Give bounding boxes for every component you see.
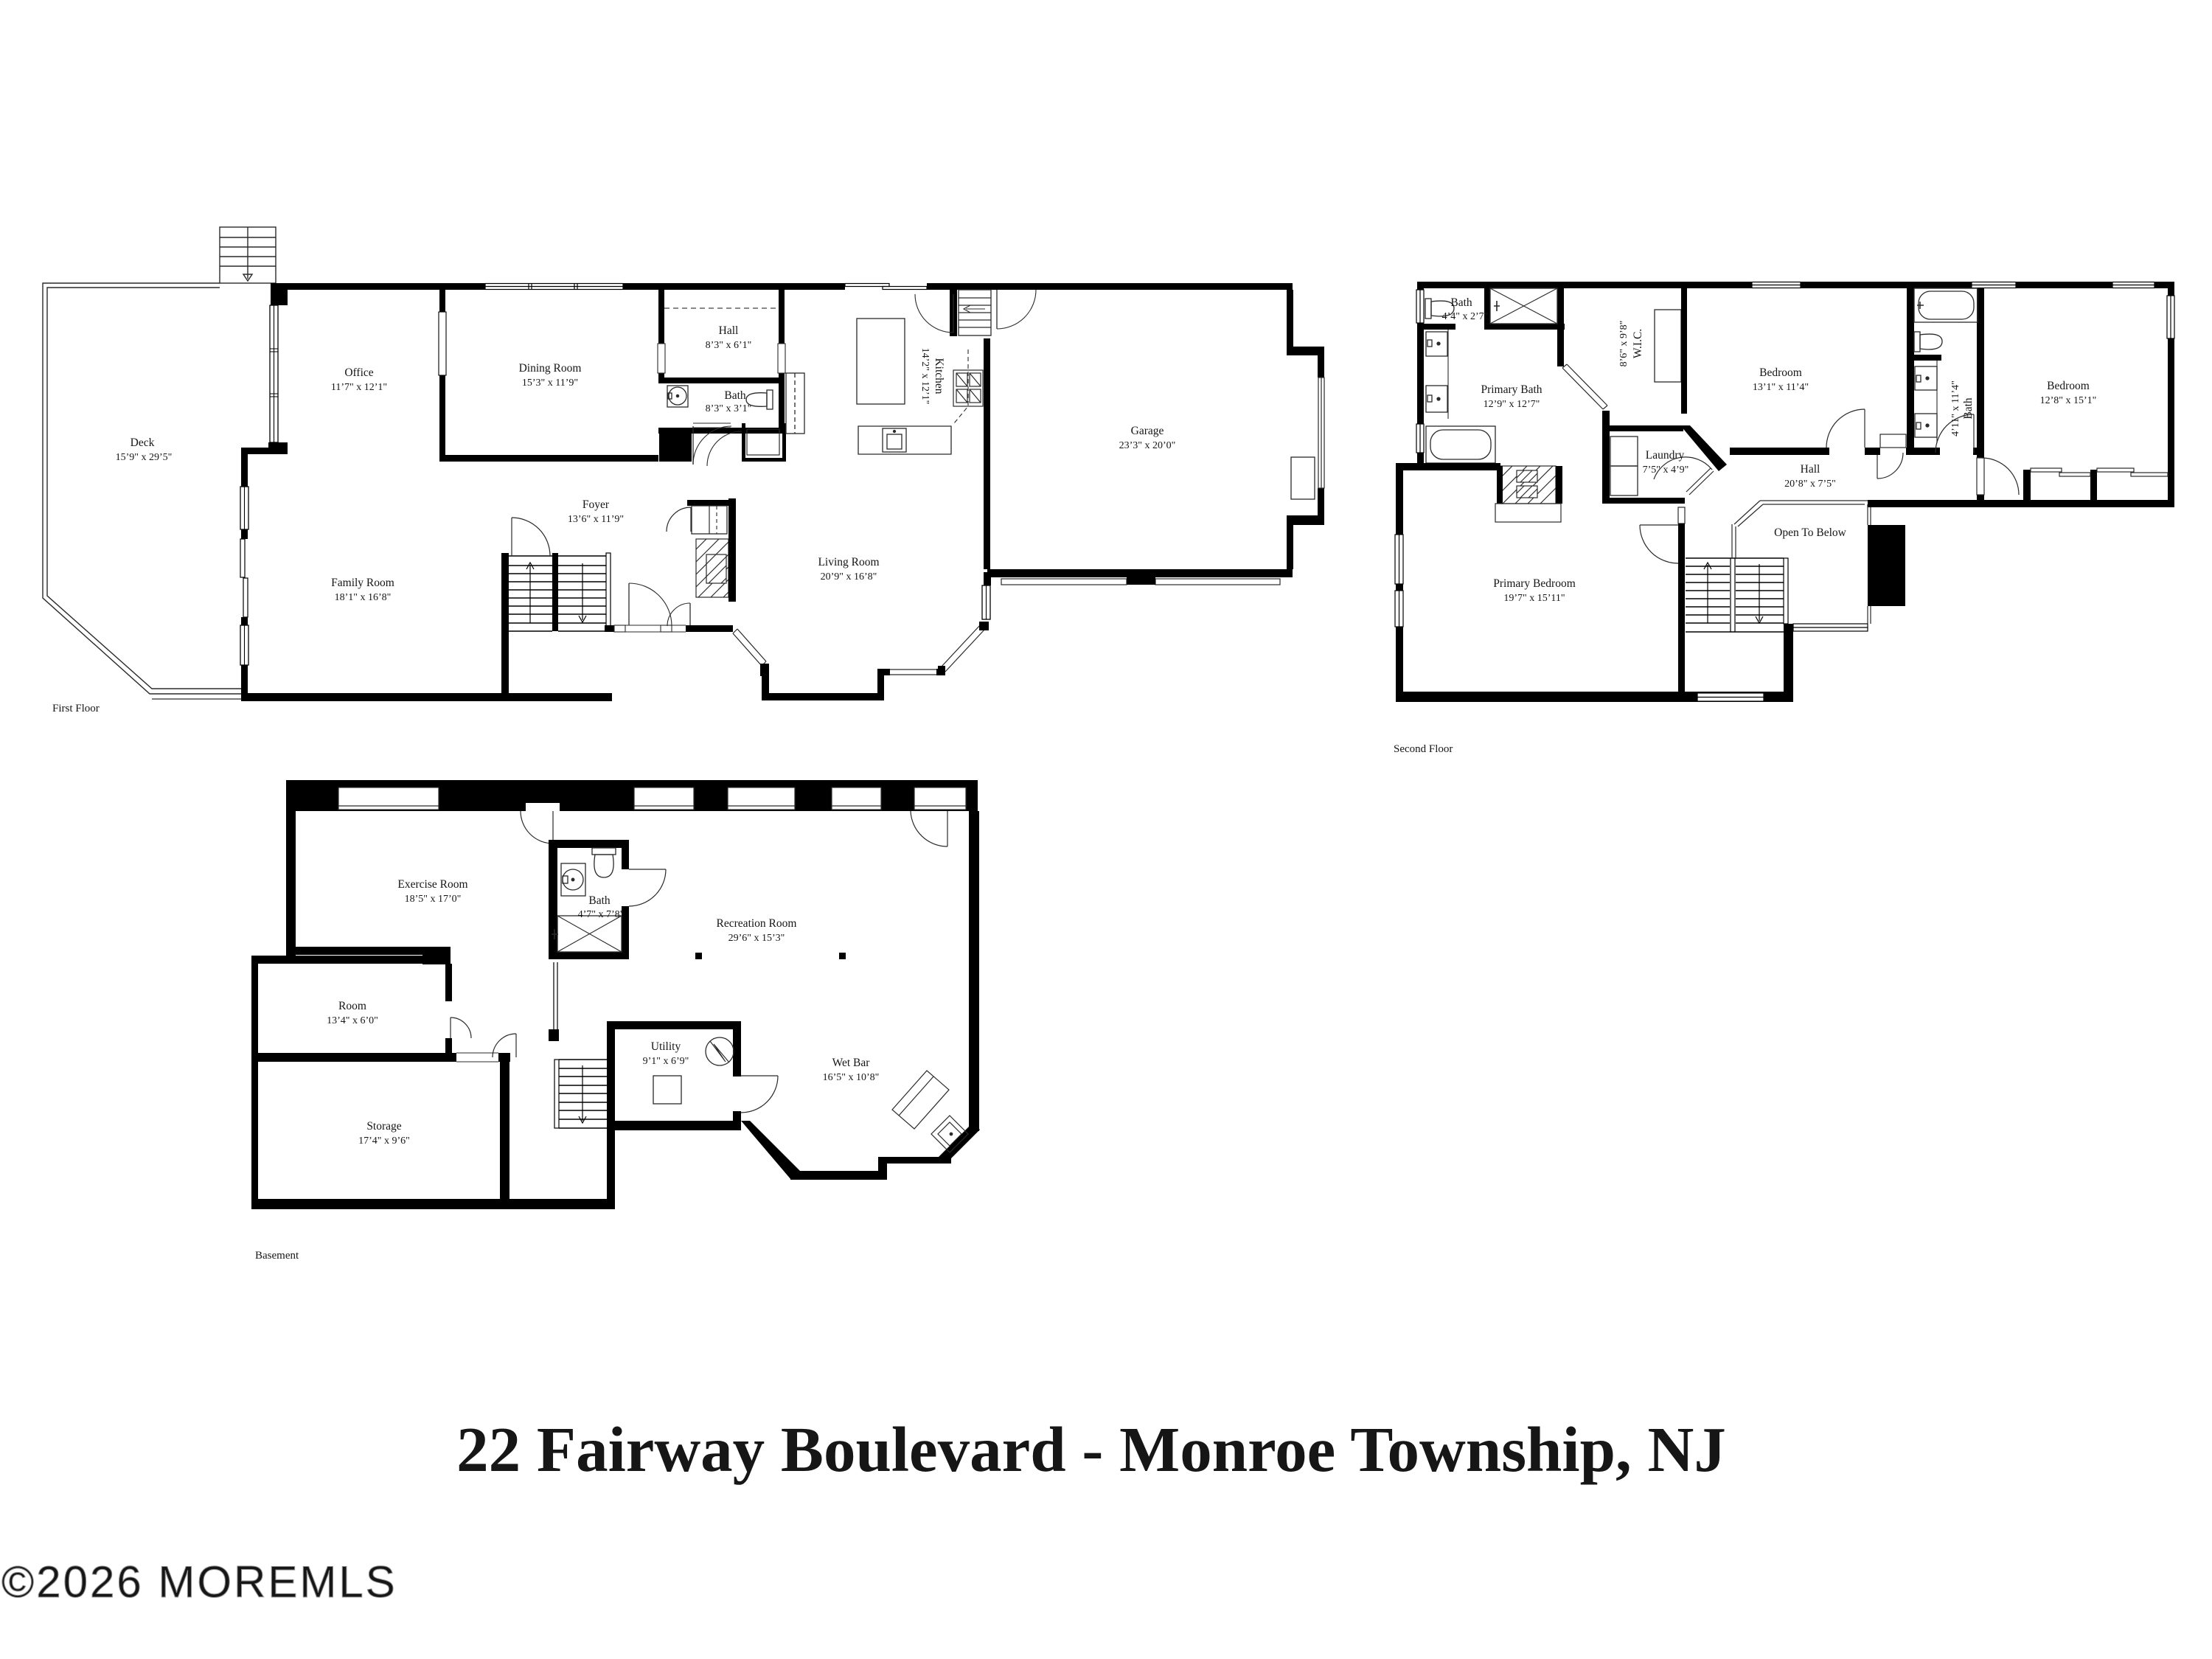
svg-text:14’2" x 12’1": 14’2" x 12’1" <box>919 348 931 405</box>
svg-text:13’4" x 6’0": 13’4" x 6’0" <box>327 1015 378 1026</box>
svg-text:18’1" x 16’8": 18’1" x 16’8" <box>335 592 392 603</box>
svg-text:Bath: Bath <box>588 894 611 907</box>
svg-text:Hall: Hall <box>1801 463 1820 476</box>
svg-text:15’9" x 29’5": 15’9" x 29’5" <box>116 452 173 463</box>
svg-text:W.I.C.: W.I.C. <box>1632 329 1644 358</box>
svg-text:22 Fairway Boulevard - Monroe: 22 Fairway Boulevard - Monroe Township, … <box>456 1413 1726 1485</box>
svg-text:Room: Room <box>338 1000 366 1012</box>
svg-text:Foyer: Foyer <box>582 498 610 511</box>
svg-text:Hall: Hall <box>719 324 739 337</box>
svg-text:16’5" x 10’8": 16’5" x 10’8" <box>823 1072 880 1083</box>
svg-text:Garage: Garage <box>1131 425 1164 437</box>
svg-text:Basement: Basement <box>255 1250 299 1262</box>
svg-text:4’11" x 11’4": 4’11" x 11’4" <box>1950 380 1961 437</box>
svg-text:13’6" x 11’9": 13’6" x 11’9" <box>568 514 624 525</box>
svg-text:Bath: Bath <box>724 389 746 402</box>
svg-text:Storage: Storage <box>366 1120 401 1133</box>
svg-text:12’9" x 12’7": 12’9" x 12’7" <box>1484 399 1540 410</box>
svg-text:First Floor: First Floor <box>52 703 100 714</box>
svg-text:Primary Bedroom: Primary Bedroom <box>1493 577 1576 590</box>
svg-text:17’4" x 9’6": 17’4" x 9’6" <box>358 1135 410 1147</box>
svg-text:Exercise Room: Exercise Room <box>397 878 467 891</box>
svg-text:Bedroom: Bedroom <box>1759 366 1802 379</box>
svg-text:8’3" x 6’1": 8’3" x 6’1" <box>706 340 752 351</box>
svg-text:29’6" x 15’3": 29’6" x 15’3" <box>728 933 785 944</box>
svg-text:12’8" x 15’1": 12’8" x 15’1" <box>2040 395 2097 406</box>
svg-text:20’8" x 7’5": 20’8" x 7’5" <box>1784 479 1836 490</box>
svg-text:Bedroom: Bedroom <box>2047 380 2090 392</box>
svg-text:Family Room: Family Room <box>331 577 394 589</box>
svg-text:©2026 MOREMLS: ©2026 MOREMLS <box>1 1557 397 1607</box>
svg-text:Bath: Bath <box>1962 397 1975 420</box>
svg-text:Kitchen: Kitchen <box>933 358 945 394</box>
svg-text:7’5" x 4’9": 7’5" x 4’9" <box>1643 465 1689 476</box>
svg-text:4’7" x 7’8": 4’7" x 7’8" <box>578 909 625 920</box>
svg-text:Laundry: Laundry <box>1646 449 1685 462</box>
svg-text:18’5" x 17’0": 18’5" x 17’0" <box>405 894 462 905</box>
svg-text:Recreation Room: Recreation Room <box>717 917 797 930</box>
svg-text:9’1" x 6’9": 9’1" x 6’9" <box>643 1056 689 1067</box>
svg-text:Dining Room: Dining Room <box>519 362 582 375</box>
svg-text:4’4" x 2’7": 4’4" x 2’7" <box>1442 311 1489 322</box>
svg-text:19’7" x 15’11": 19’7" x 15’11" <box>1503 593 1565 604</box>
svg-text:15’3" x 11’9": 15’3" x 11’9" <box>522 378 578 389</box>
svg-text:11’7" x 12’1": 11’7" x 12’1" <box>331 382 387 393</box>
svg-text:13’1" x 11’4": 13’1" x 11’4" <box>1753 382 1809 393</box>
svg-text:Living Room: Living Room <box>818 556 879 568</box>
svg-text:8’3" x 3’1": 8’3" x 3’1" <box>706 403 752 414</box>
svg-text:23’3" x 20’0": 23’3" x 20’0" <box>1119 440 1176 451</box>
svg-text:Utility: Utility <box>651 1040 681 1053</box>
svg-text:Second Floor: Second Floor <box>1394 743 1453 755</box>
svg-text:Deck: Deck <box>131 437 155 449</box>
svg-text:20’9" x 16’8": 20’9" x 16’8" <box>821 571 877 582</box>
svg-text:8’6" x 9’8": 8’6" x 9’8" <box>1618 321 1630 367</box>
svg-text:Primary Bath: Primary Bath <box>1481 383 1542 396</box>
svg-text:Office: Office <box>344 366 373 379</box>
svg-text:Bath: Bath <box>1450 296 1472 309</box>
svg-text:Open To Below: Open To Below <box>1774 526 1846 539</box>
svg-text:Wet Bar: Wet Bar <box>832 1057 871 1069</box>
